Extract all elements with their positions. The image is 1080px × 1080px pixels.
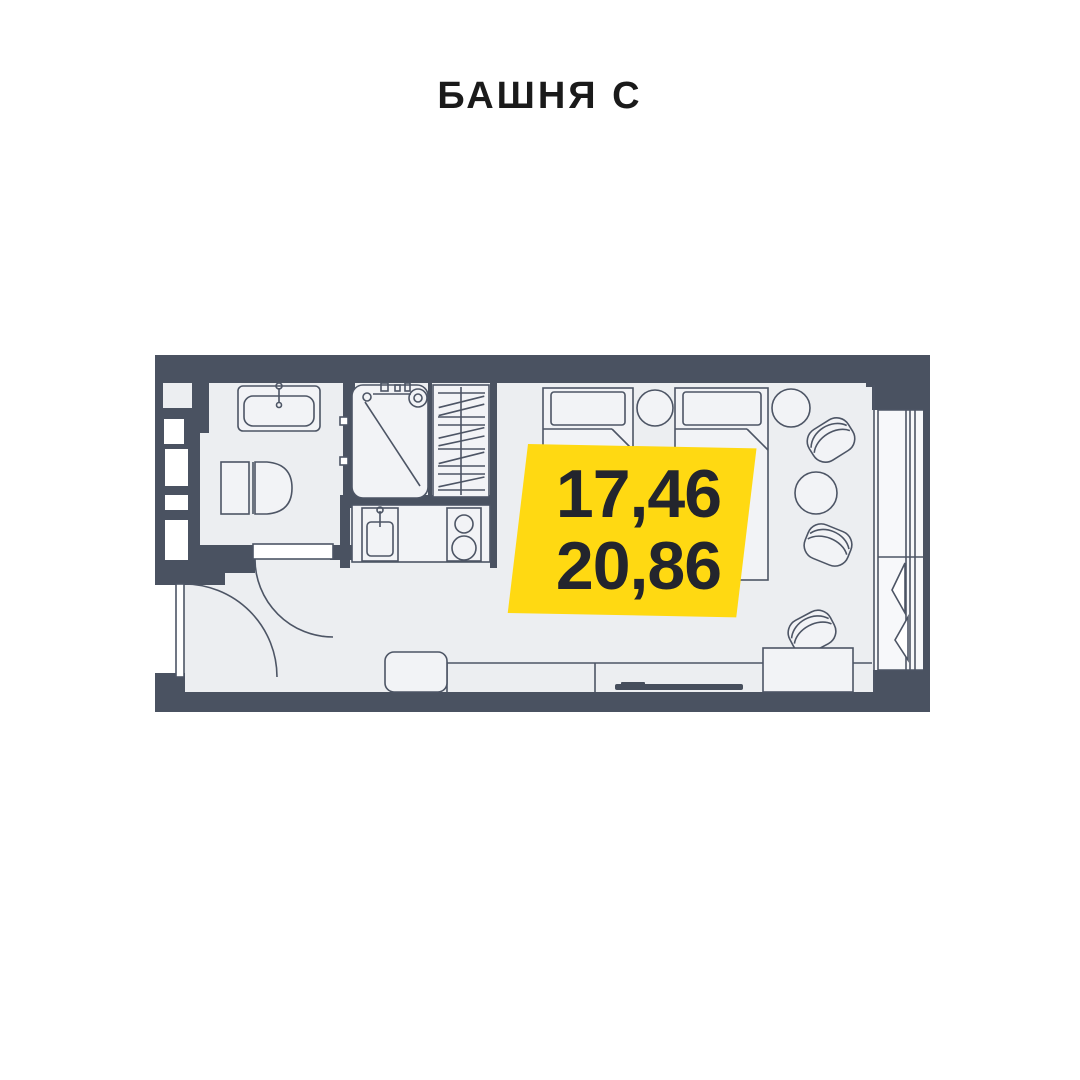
entrance-door-icon: [176, 584, 277, 677]
toilet-icon: [221, 462, 292, 514]
page-title: БАШНЯ С: [0, 75, 1080, 118]
round-table-icon: [795, 472, 837, 514]
bathroom-door-icon: [253, 544, 333, 637]
balcony-glazing-icon: [874, 385, 923, 692]
side-table-icon: [772, 389, 810, 427]
kitchen-counter-icon: [352, 505, 490, 562]
shower-icon: [340, 383, 428, 498]
area-value-total: 20,86: [528, 530, 749, 602]
stool-icon: [385, 652, 447, 692]
area-value-living: 17,46: [528, 458, 749, 530]
armchair-icon: [802, 413, 860, 468]
armchair-icon: [800, 520, 856, 571]
area-badge: 17,46 20,86: [528, 444, 757, 613]
desk-icon: [763, 648, 853, 692]
bathroom-sink-icon: [238, 383, 320, 431]
wardrobe-hangers-icon: [433, 385, 489, 497]
side-table-icon: [637, 390, 673, 426]
tv-icon: [615, 682, 743, 690]
floor-plan: 17,46 20,86: [155, 355, 930, 712]
